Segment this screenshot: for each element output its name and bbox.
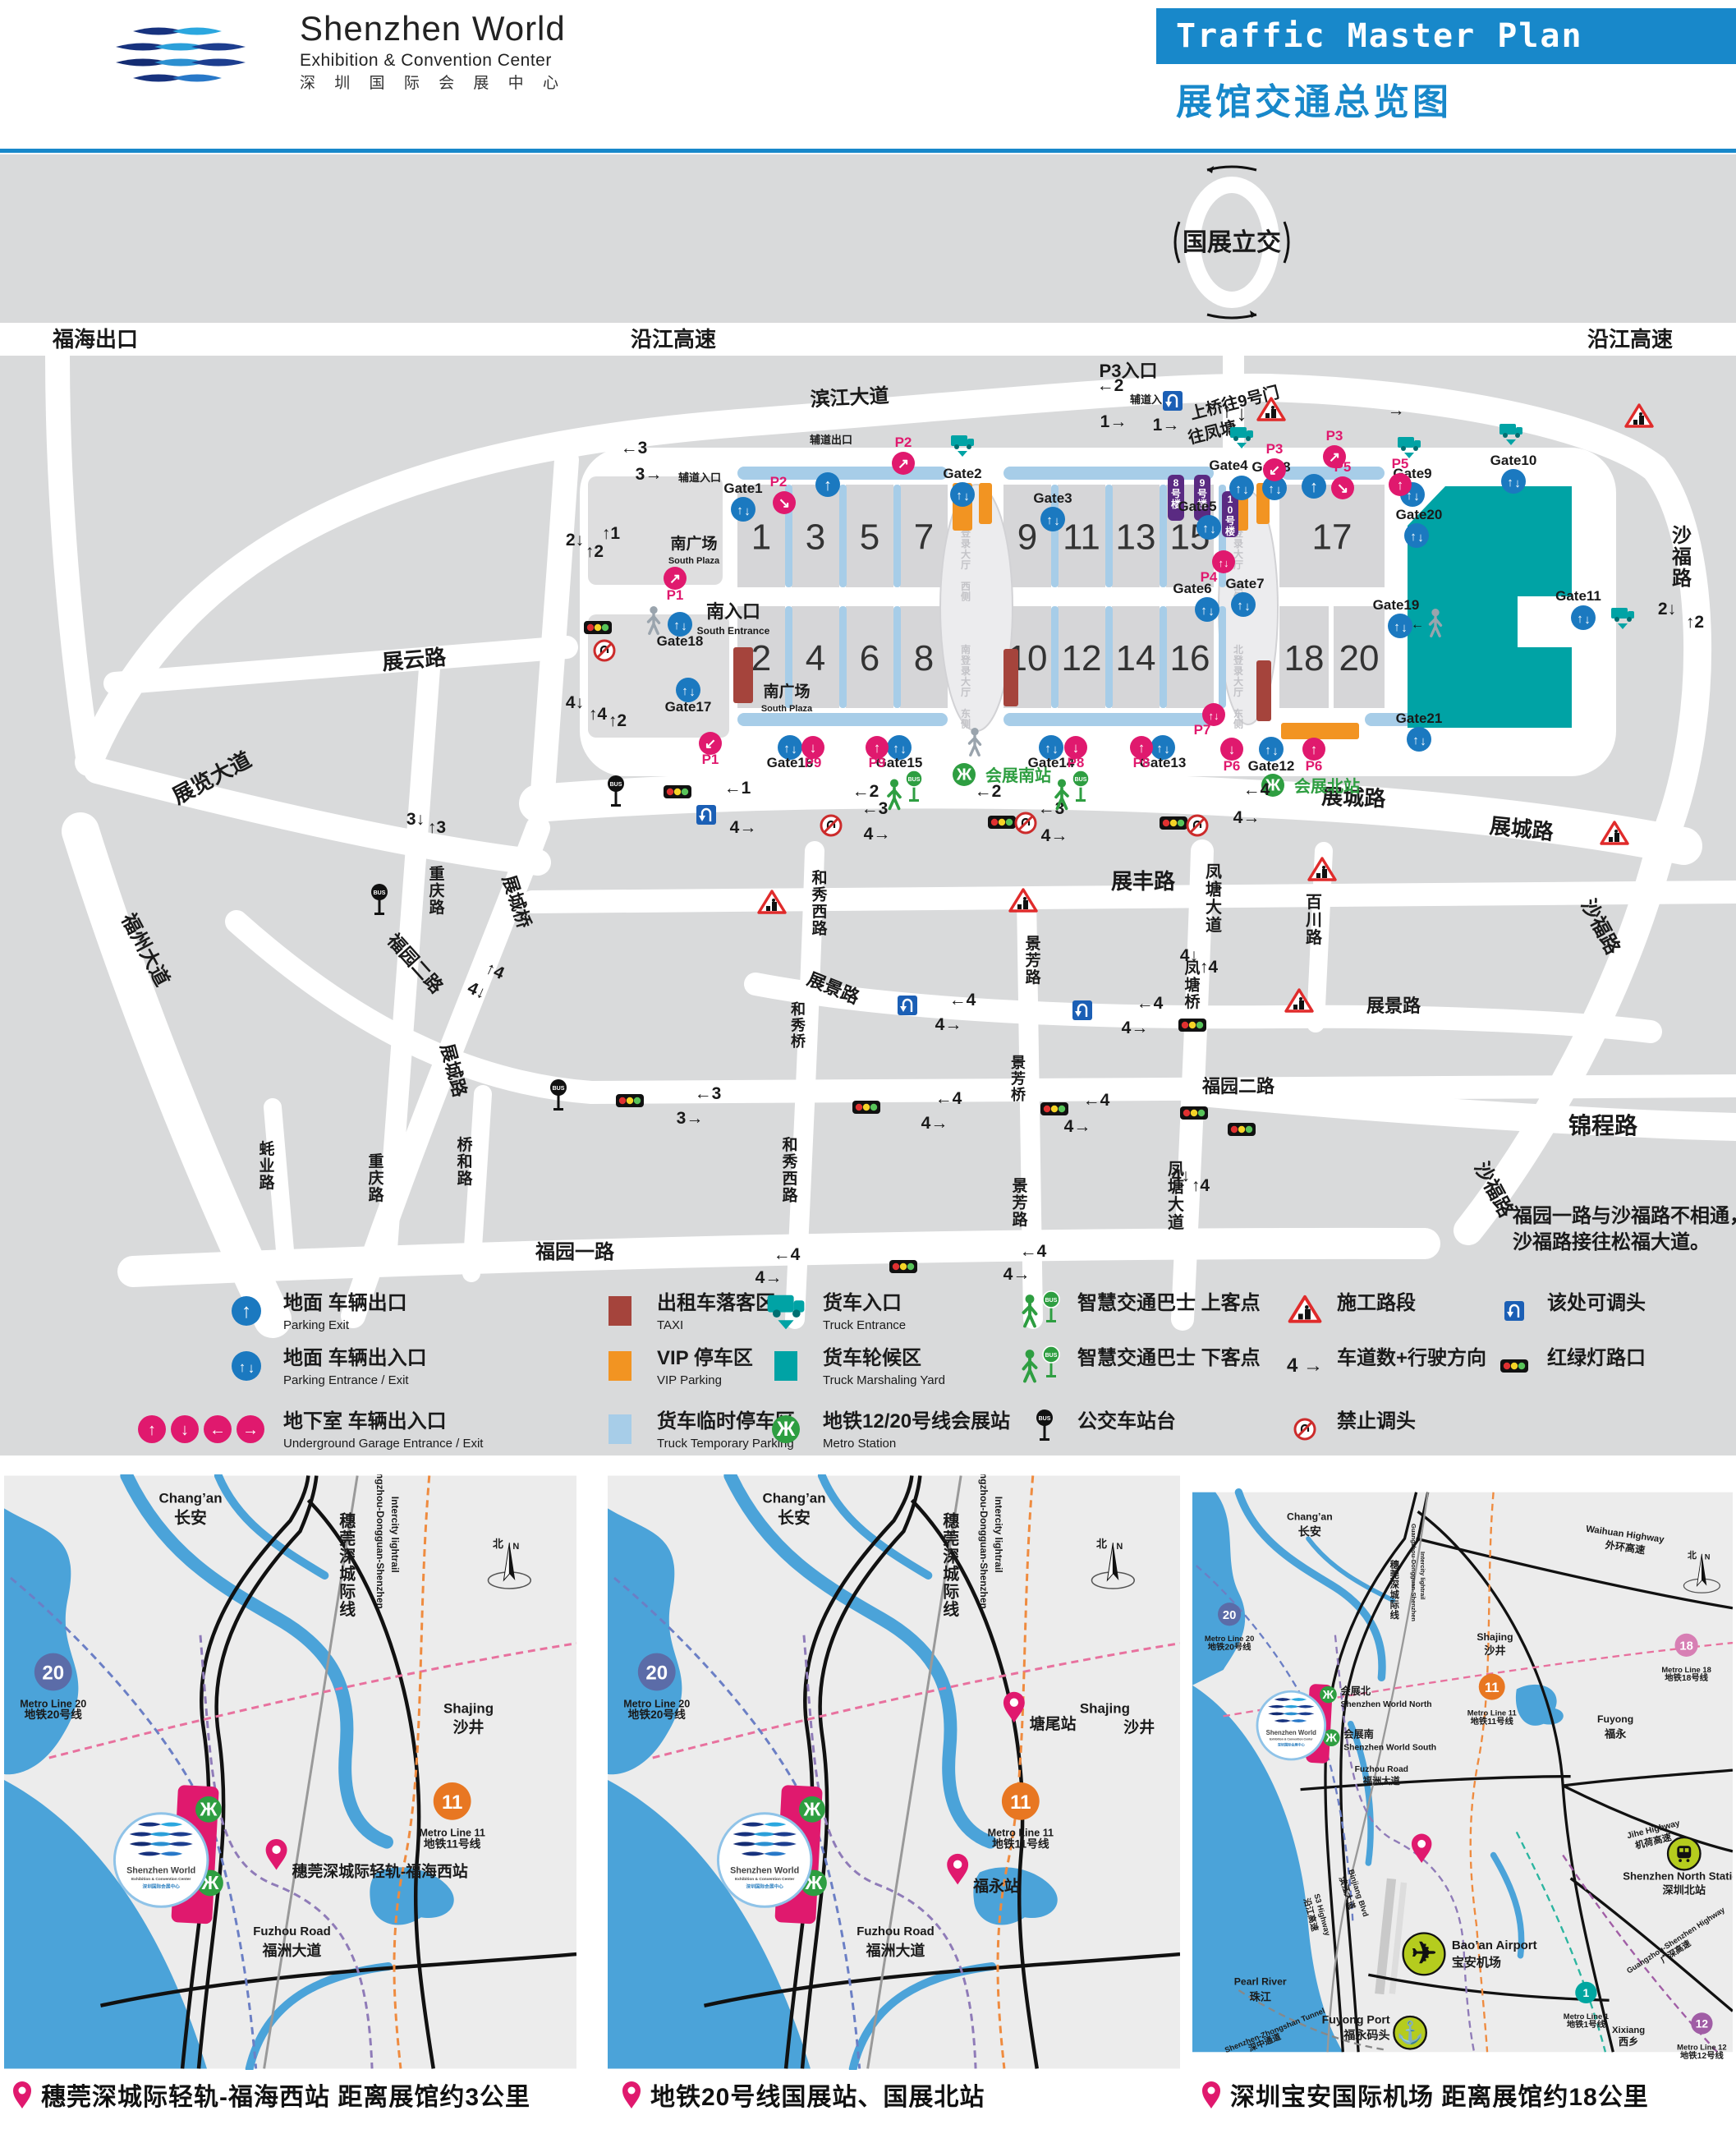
- svg-text:↓: ↓: [1210, 522, 1216, 536]
- gate-label: Gate5: [1178, 499, 1216, 514]
- map-label: Intercity lightrail: [993, 1497, 1004, 1573]
- road-label: 锦程路: [1568, 1113, 1638, 1138]
- svg-text:BUS: BUS: [1045, 1353, 1058, 1359]
- lane-arrow: ←4: [1243, 780, 1270, 799]
- road-label: 和秀西路: [781, 1135, 798, 1205]
- uturn-allowed-icon: [1163, 391, 1183, 411]
- svg-text:BUS: BUS: [1045, 1298, 1058, 1304]
- map-label: 穗莞深城际线: [943, 1511, 959, 1619]
- svg-text:↓: ↓: [1244, 600, 1251, 614]
- road-label: 福园二路: [1201, 1076, 1275, 1097]
- garage-label: P4: [1201, 569, 1218, 585]
- gate-label: Gate2: [943, 466, 981, 481]
- svg-text:Exhibition & Convention Center: Exhibition & Convention Center: [735, 1877, 795, 1882]
- lane-arrow: ←4: [949, 991, 976, 1009]
- garage-p6: ↑P6: [1302, 738, 1325, 774]
- svg-text:↓: ↓: [1514, 476, 1521, 490]
- legend-cn: 地下室 车辆出入口: [283, 1410, 447, 1432]
- no-uturn-icon: [1187, 816, 1207, 835]
- airport-map: ЖЖShenzhen WorldExhibition & Convention …: [1192, 1474, 1733, 2070]
- taxi-dropoff-zone: [1003, 649, 1018, 706]
- svg-text:↓: ↓: [963, 490, 970, 504]
- note-text: 福园一路与沙福路不相通，: [1512, 1204, 1736, 1227]
- map-label: 长安: [174, 1507, 207, 1527]
- svg-text:↑: ↑: [956, 489, 962, 503]
- legend-en: Truck Marshaling Yard: [823, 1373, 945, 1387]
- metro-icon: Ж: [799, 1796, 825, 1823]
- lane-arrow: 3↓: [406, 810, 425, 829]
- svg-text:↑: ↑: [1138, 740, 1146, 756]
- svg-text:20: 20: [1339, 638, 1380, 678]
- plane-icon: ✈: [1403, 1933, 1445, 1975]
- garage-label: P8: [1068, 755, 1085, 770]
- vip-parking-zone: [1281, 723, 1359, 739]
- traffic-light-icon: [1040, 1102, 1068, 1115]
- svg-text:深圳国际会展中心: 深圳国际会展中心: [143, 1883, 181, 1890]
- svg-text:国展立交: 国展立交: [1183, 228, 1281, 256]
- legend-cn: 公交车站台: [1077, 1410, 1176, 1432]
- svg-text:14: 14: [1116, 638, 1156, 678]
- caption-airport: 深圳宝安国际机场 距离展馆约18公里: [1201, 2076, 1649, 2113]
- svg-text:↑: ↑: [1507, 476, 1513, 490]
- svg-text:↓: ↓: [1417, 531, 1424, 545]
- page: Shenzhen World Exhibition & Convention C…: [0, 0, 1736, 2143]
- caption-text: 深圳宝安国际机场 距离展馆约18公里: [1230, 2076, 1649, 2113]
- svg-text:↑: ↑: [241, 1300, 251, 1322]
- map-label: 西乡: [1619, 2035, 1638, 2048]
- lane-arrow: 3→: [636, 465, 663, 484]
- garage-p1: ↗P1: [664, 567, 687, 603]
- lane-arrow: ↑2: [1686, 613, 1704, 632]
- road-label: 凤塘大道: [1206, 863, 1222, 935]
- map-label: 长安: [1298, 1524, 1321, 1538]
- lane-arrow: 1→: [1153, 416, 1180, 435]
- svg-text:BUS: BUS: [1075, 777, 1087, 783]
- svg-text:↑: ↑: [824, 476, 832, 494]
- logo-text: Shenzhen World Exhibition & Convention C…: [300, 11, 566, 91]
- map-label: Shenzhen World South: [1343, 1744, 1436, 1753]
- svg-text:↓: ↓: [1229, 742, 1236, 757]
- svg-text:↑: ↑: [1310, 478, 1318, 496]
- legend-cn: 地面 车辆出口: [283, 1291, 407, 1314]
- svg-text:Exhibition & Convention Center: Exhibition & Convention Center: [1270, 1737, 1313, 1741]
- svg-text:↙: ↙: [1269, 462, 1280, 478]
- svg-text:Ж: Ж: [199, 1798, 217, 1819]
- svg-text:↑: ↑: [1237, 599, 1243, 613]
- legend-en: VIP Parking: [657, 1373, 722, 1387]
- svg-text:↑: ↑: [1268, 482, 1274, 496]
- hall-6: 6: [846, 606, 893, 708]
- uturn-allowed-icon: [1504, 1301, 1524, 1321]
- svg-text:↗: ↗: [898, 456, 909, 471]
- traffic-light-icon: [1180, 1106, 1208, 1120]
- svg-text:地铁12号线: 地铁12号线: [1680, 2050, 1724, 2061]
- garage-label: P7: [1194, 722, 1211, 738]
- svg-text:20: 20: [42, 1662, 64, 1685]
- svg-text:↓: ↓: [1420, 734, 1426, 748]
- garage-label: P1: [667, 587, 684, 603]
- map-label: Guangzhou-Dongguan-Shenzhen: [374, 1474, 386, 1609]
- hall-18: 18: [1279, 606, 1329, 708]
- road-label: 景芳桥: [1011, 1055, 1026, 1103]
- svg-text:↓: ↓: [1242, 483, 1249, 497]
- svg-text:20: 20: [645, 1662, 668, 1685]
- svg-text:9: 9: [1017, 517, 1037, 558]
- map-label: Shajing: [1477, 1631, 1513, 1643]
- map-label: Shenzhen World North: [1340, 1700, 1431, 1709]
- hall-7: 7: [900, 485, 948, 587]
- legend-cn: 智慧交通巴士 上客点: [1077, 1291, 1261, 1314]
- svg-text:Metro Line 12: Metro Line 12: [1677, 2042, 1726, 2051]
- legend-en: TAXI: [657, 1318, 683, 1332]
- gate-label: Gate4: [1209, 458, 1248, 473]
- svg-text:↓: ↓: [744, 504, 751, 518]
- svg-text:12: 12: [1062, 638, 1102, 678]
- caption-text: 地铁20号线国展站、国展北站: [650, 2076, 985, 2113]
- svg-text:BUS: BUS: [610, 782, 622, 788]
- uturn-allowed-icon: [1072, 1000, 1092, 1020]
- svg-text:11: 11: [1010, 1791, 1031, 1814]
- gate-label: Gate18: [657, 633, 704, 649]
- submap-lightrail: ЖЖShenzhen WorldExhibition & Convention …: [4, 1474, 576, 2070]
- garage-label: P9: [869, 755, 886, 770]
- map-label: Chang’an: [159, 1490, 223, 1506]
- road-label: 辅道入口: [678, 471, 721, 484]
- svg-text:2: 2: [751, 638, 771, 678]
- road-label: 展景路: [1366, 996, 1421, 1016]
- traffic-light-icon: [616, 1094, 644, 1107]
- svg-text:N: N: [1116, 1542, 1123, 1552]
- road-label: 南入口: [706, 601, 760, 622]
- svg-text:地铁11号线: 地铁11号线: [992, 1837, 1049, 1850]
- road-label: South Entrance: [697, 625, 770, 637]
- map-label: 福洲大道: [262, 1942, 322, 1959]
- svg-text:地铁20号线: 地铁20号线: [628, 1708, 686, 1721]
- svg-text:BUS: BUS: [553, 1086, 565, 1092]
- lane-arrow: ↑4: [1200, 958, 1219, 977]
- road-label: South Plaza: [761, 704, 813, 714]
- traffic-light-icon: [1160, 816, 1187, 830]
- legend-cn: 施工路段: [1337, 1291, 1416, 1314]
- svg-text:N: N: [512, 1542, 519, 1552]
- svg-text:←: ←: [1411, 618, 1424, 632]
- garage-p1: ↙P1: [699, 732, 722, 767]
- lane-arrow: 4→: [864, 825, 891, 844]
- lane-arrow: 4→: [1122, 1019, 1149, 1037]
- header-divider: [0, 149, 1736, 153]
- svg-text:Metro Line 20: Metro Line 20: [1205, 1634, 1254, 1643]
- intercity-lightrail-map: ЖЖShenzhen WorldExhibition & Convention …: [4, 1474, 576, 2070]
- lane-arrow: ←4: [1020, 1242, 1047, 1261]
- map-label: 福洲大道: [1362, 1775, 1401, 1787]
- svg-text:↑↓: ↑↓: [1219, 557, 1229, 569]
- lane-arrow: →: [1388, 401, 1405, 420]
- garage-label: P5: [1392, 456, 1409, 471]
- map-label: 穗莞深城际线: [1389, 1559, 1400, 1621]
- svg-text:↑: ↑: [148, 1421, 156, 1439]
- uturn-allowed-icon: [696, 805, 716, 825]
- hall-5: 5: [846, 485, 893, 587]
- svg-text:↑: ↑: [1201, 604, 1207, 618]
- map-label: 宝安机场: [1452, 1955, 1501, 1970]
- svg-text:Ж: Ж: [1325, 1731, 1337, 1745]
- page-title-en: Traffic Master Plan: [1156, 8, 1736, 64]
- traffic-light-icon: [889, 1260, 917, 1273]
- road-label: 景芳路: [1025, 935, 1041, 986]
- garage-p6: ↓P6: [1220, 738, 1243, 774]
- svg-text:地铁20号线: 地铁20号线: [1208, 1642, 1251, 1653]
- map-label: 会展南: [1343, 1728, 1374, 1741]
- lane-arrow: 4→: [1003, 1265, 1031, 1284]
- hall-20: 20: [1334, 606, 1385, 708]
- road-label: 福海出口: [52, 327, 138, 352]
- lane-arrow: ↑2: [586, 542, 604, 561]
- gate-label: Gate3: [1033, 490, 1072, 506]
- lane-arrow: ↑: [1222, 398, 1233, 422]
- svg-text:↘: ↘: [1337, 481, 1348, 496]
- lane-arrow: 4→: [921, 1114, 948, 1133]
- lane-arrow: 4→: [935, 1015, 962, 1034]
- map-label: Chang’an: [763, 1490, 826, 1506]
- lane-arrow: 4↓: [566, 693, 584, 712]
- caption-lightrail: 穗莞深城际轻轨-福海西站 距离展馆约3公里: [11, 2076, 530, 2113]
- lane-arrow: 4→: [730, 818, 757, 837]
- svg-text:13: 13: [1116, 517, 1156, 558]
- svg-text:↑: ↑: [1577, 612, 1583, 626]
- station-pin-label: 福永站: [972, 1876, 1020, 1895]
- map-label: Fuyong: [1597, 1713, 1633, 1725]
- svg-text:1: 1: [751, 517, 771, 558]
- traffic-light-icon: [1178, 1019, 1206, 1032]
- traffic-light-icon: [664, 785, 691, 798]
- map-label: 福洲大道: [866, 1942, 925, 1959]
- svg-text:↑: ↑: [1394, 620, 1400, 634]
- svg-text:↑: ↑: [1265, 743, 1271, 757]
- no-uturn-icon: [595, 641, 614, 660]
- metro-icon: Ж: [953, 763, 976, 786]
- map-label: 珠江: [1250, 1989, 1271, 2003]
- svg-text:↑: ↑: [682, 684, 688, 698]
- logo-title: Shenzhen World: [300, 11, 566, 46]
- legend-cn: 地铁12/20号线会展站: [823, 1410, 1010, 1432]
- map-label: Fuzhou Road: [1355, 1765, 1408, 1774]
- legend-en: Truck Temporary Parking: [657, 1437, 794, 1451]
- svg-text:地铁1号线: 地铁1号线: [1567, 2019, 1606, 2030]
- lane-arrow: ↓: [1237, 401, 1247, 425]
- svg-text:↓: ↓: [181, 1421, 189, 1439]
- svg-text:Shenzhen World: Shenzhen World: [126, 1865, 195, 1875]
- svg-text:7: 7: [914, 517, 934, 558]
- svg-text:北: 北: [493, 1538, 503, 1550]
- gate-label: Gate10: [1490, 453, 1537, 468]
- svg-text:4: 4: [806, 638, 825, 678]
- legend-cn: 禁止调头: [1337, 1410, 1416, 1432]
- svg-text:Shenzhen World: Shenzhen World: [1266, 1729, 1317, 1736]
- parking-exit-icon: ↑: [815, 472, 840, 497]
- road-label: 和秀桥: [790, 1001, 806, 1050]
- no-uturn-icon: [1016, 813, 1036, 833]
- road-label: 南广场: [763, 682, 810, 701]
- garage-label: P1: [702, 752, 719, 767]
- lane-arrow: ←4: [1137, 994, 1164, 1013]
- metro-line20-map: ЖЖShenzhen WorldExhibition & Convention …: [608, 1474, 1180, 2070]
- lane-arrow: ←2: [852, 782, 879, 801]
- svg-text:N: N: [1705, 1553, 1711, 1561]
- svg-text:11: 11: [442, 1791, 462, 1814]
- svg-text:8: 8: [914, 638, 934, 678]
- lane-arrow: 2↓: [566, 531, 584, 550]
- legend-cn: VIP 停车区: [657, 1346, 753, 1369]
- gate-label: Gate7: [1225, 576, 1264, 591]
- svg-text:Shenzhen World: Shenzhen World: [730, 1865, 799, 1875]
- svg-text:BUS: BUS: [374, 890, 386, 896]
- page-title-cn: 展馆交通总览图: [1156, 64, 1736, 125]
- map-label: Fuyong Port: [1322, 2012, 1390, 2026]
- map-label: Shenzhen North Station: [1623, 1870, 1733, 1883]
- road-label: 沙福路: [1671, 525, 1692, 590]
- legend-cn: 出租车落客区: [657, 1291, 775, 1314]
- map-label: Intercity lightrail: [389, 1497, 401, 1573]
- svg-text:↓: ↓: [1413, 490, 1420, 504]
- map-label: 福永码头: [1343, 2028, 1389, 2041]
- svg-text:↓: ↓: [1272, 744, 1279, 758]
- map-label: Fuzhou Road: [857, 1925, 935, 1938]
- caption-metro20: 地铁20号线国展站、国展北站: [621, 2076, 985, 2113]
- metro-station-label: 会展北站: [1294, 776, 1360, 796]
- lane-arrow: ↑1: [602, 524, 621, 543]
- map-label: Xixiang: [1612, 2026, 1645, 2035]
- svg-text:↓: ↓: [689, 685, 696, 699]
- gate-label: Gate1: [723, 481, 762, 496]
- svg-text:11: 11: [1063, 517, 1100, 558]
- svg-text:↓: ↓: [681, 619, 687, 633]
- svg-text:✈: ✈: [1412, 1936, 1437, 1970]
- svg-text:Metro Line 1: Metro Line 1: [1564, 2012, 1609, 2021]
- svg-text:18: 18: [1679, 1640, 1692, 1653]
- lane-arrow: ↑3: [428, 818, 446, 837]
- lane-arrow: ←3: [861, 799, 889, 818]
- lane-arrow: ←4: [1083, 1091, 1110, 1110]
- svg-text:↑: ↑: [1397, 477, 1404, 493]
- submap-metro20: ЖЖShenzhen WorldExhibition & Convention …: [608, 1474, 1180, 2070]
- svg-text:BUS: BUS: [908, 777, 921, 783]
- svg-text:↗: ↗: [669, 571, 681, 586]
- road-label: 桥和路: [457, 1135, 473, 1188]
- svg-text:↑: ↑: [1202, 522, 1209, 536]
- map-label: Guangzhou-Dongguan-Shenzhen: [978, 1474, 990, 1609]
- svg-text:17: 17: [1312, 517, 1353, 558]
- south-lobby: [940, 485, 1013, 731]
- lane-arrow: ↑4: [1192, 1176, 1210, 1195]
- svg-text:↑: ↑: [1235, 482, 1242, 496]
- road-label: 展丰路: [1111, 869, 1176, 894]
- svg-text:↙: ↙: [705, 736, 716, 752]
- hall-13: 13: [1112, 485, 1160, 587]
- map-label: 会展北: [1340, 1685, 1371, 1697]
- traffic-light-icon: [1500, 1359, 1528, 1373]
- svg-text:↑: ↑: [1045, 742, 1051, 756]
- logo-subtitle-en: Exhibition & Convention Center: [300, 52, 566, 69]
- station-pin-label: 塘尾站: [1030, 1714, 1077, 1733]
- lane-arrow: ←1: [724, 779, 751, 798]
- svg-text:北: 北: [1096, 1538, 1107, 1550]
- lane-arrow: 1→: [1100, 412, 1127, 431]
- svg-text:Ж: Ж: [956, 766, 972, 784]
- title-box: Traffic Master Plan 展馆交通总览图: [1156, 8, 1736, 125]
- map-label: 沙井: [453, 1718, 485, 1736]
- no-uturn-icon: [1295, 1419, 1315, 1439]
- svg-text:北: 北: [1688, 1549, 1697, 1561]
- metro-icon: Ж: [772, 1415, 800, 1443]
- garage-label: P5: [1334, 459, 1352, 475]
- road-label: 和秀西路: [811, 868, 828, 938]
- shenzhen-world-logo-badge: Shenzhen WorldExhibition & Convention Ce…: [1257, 1691, 1325, 1759]
- svg-text:1: 1: [1583, 1986, 1590, 1999]
- svg-text:↑: ↑: [737, 504, 743, 517]
- road-label: 沿江高速: [631, 327, 716, 352]
- svg-text:↓: ↓: [1072, 740, 1080, 756]
- svg-text:16: 16: [1170, 638, 1210, 678]
- map-label: Intercity lightrail: [1419, 1552, 1426, 1599]
- svg-text:4 →: 4 →: [1287, 1354, 1323, 1377]
- legend-item: 货车入口Truck Entrance: [768, 1291, 907, 1332]
- map-label: 穗莞深城际线: [339, 1511, 356, 1619]
- map-label: 沙井: [1484, 1644, 1505, 1657]
- svg-text:↑: ↑: [673, 619, 680, 632]
- svg-text:↘: ↘: [778, 495, 790, 511]
- road-label: 辅道出口: [810, 434, 852, 446]
- road-label: 百川路: [1305, 894, 1323, 947]
- lane-arrow: 4↓: [1180, 946, 1198, 965]
- svg-text:Metro Line 11: Metro Line 11: [1467, 1708, 1517, 1717]
- garage-label: P9: [805, 755, 822, 770]
- traffic-light-icon: [852, 1101, 880, 1114]
- map-label: Guangzhou-Dongguan-Shenzhen: [1410, 1524, 1417, 1621]
- lane-arrow: ←4: [774, 1245, 801, 1264]
- traffic-light-icon: [988, 816, 1016, 829]
- svg-text:↓: ↓: [810, 740, 817, 756]
- lane-arrow: ↑4: [589, 705, 608, 724]
- metro-icon: Ж: [195, 1796, 222, 1823]
- legend-en: Parking Entrance / Exit: [283, 1373, 409, 1387]
- svg-text:↑: ↑: [783, 742, 790, 756]
- vip-parking-zone: [979, 483, 992, 524]
- svg-text:深圳国际会展中心: 深圳国际会展中心: [746, 1883, 784, 1890]
- station-pin-label: 穗莞深城际轻轨-福海西站: [292, 1861, 467, 1880]
- svg-text:↑: ↑: [1156, 742, 1163, 756]
- lane-arrow: 4→: [1064, 1117, 1091, 1136]
- svg-text:↑↓: ↑↓: [1209, 710, 1219, 722]
- lane-arrow: 4→: [1041, 826, 1068, 845]
- svg-text:18: 18: [1284, 638, 1325, 678]
- legend-cn: 地面 车辆出入口: [283, 1346, 427, 1369]
- svg-text:↑: ↑: [239, 1359, 246, 1375]
- svg-text:深圳国际会展中心: 深圳国际会展中心: [1278, 1741, 1306, 1746]
- map-label: Bao’an Airport: [1452, 1938, 1537, 1952]
- road-label: 重庆路: [368, 1152, 384, 1204]
- caption-text: 穗莞深城际轻轨-福海西站 距离展馆约3公里: [41, 2076, 530, 2113]
- lane-arrow: 3→: [677, 1109, 704, 1128]
- svg-text:地铁18号线: 地铁18号线: [1665, 1672, 1708, 1683]
- legend-en: Truck Entrance: [823, 1318, 906, 1332]
- map-label: Shajing: [443, 1700, 494, 1716]
- legend-cn: 红绿灯路口: [1547, 1346, 1646, 1369]
- garage-label: P2: [895, 435, 912, 450]
- hall-3: 3: [792, 485, 839, 587]
- taxi-dropoff-zone: [733, 647, 753, 703]
- garage-label: P3: [1326, 428, 1343, 444]
- map-label: Pearl River: [1234, 1975, 1287, 1987]
